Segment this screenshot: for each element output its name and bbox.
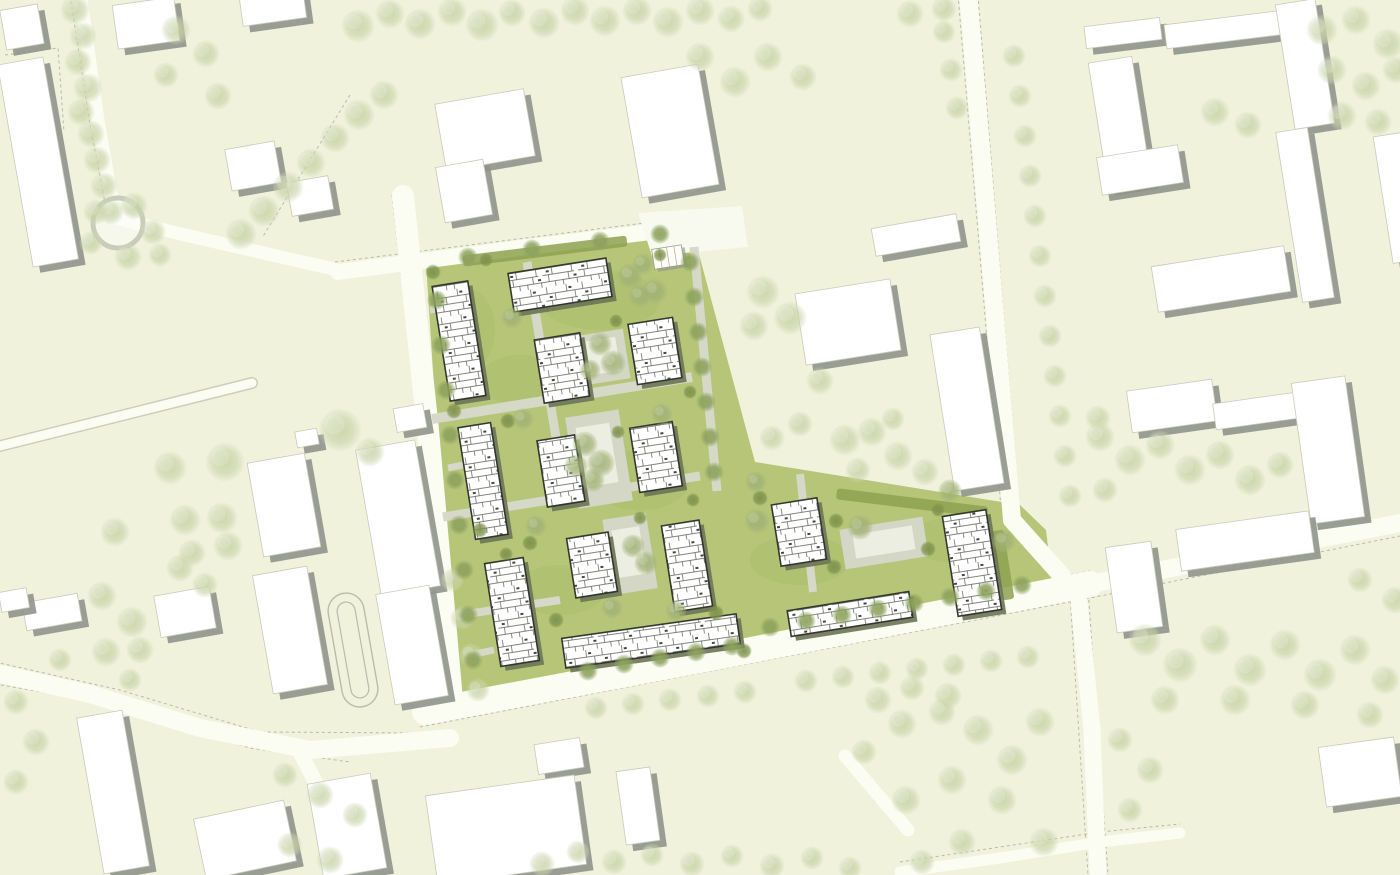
tree-highlight bbox=[444, 572, 455, 583]
street-tree bbox=[976, 581, 996, 601]
shrub bbox=[522, 535, 538, 551]
tree-highlight bbox=[253, 200, 267, 214]
tree-highlight bbox=[1346, 10, 1360, 24]
tree-highlight bbox=[683, 855, 695, 867]
tree-highlight bbox=[1052, 408, 1063, 419]
tree-highlight bbox=[325, 128, 339, 142]
tree-highlight bbox=[949, 100, 960, 111]
context-building-footprint bbox=[295, 428, 319, 448]
street-tree bbox=[522, 239, 542, 259]
context-building-footprint bbox=[1318, 737, 1400, 807]
tree-highlight bbox=[96, 642, 110, 656]
tree-highlight bbox=[1111, 731, 1123, 743]
tree-highlight bbox=[281, 836, 293, 848]
tree-highlight bbox=[348, 104, 362, 118]
tree-highlight bbox=[1057, 448, 1068, 459]
tree-highlight bbox=[835, 669, 846, 680]
tree-highlight bbox=[804, 850, 815, 861]
tree-highlight bbox=[92, 586, 106, 600]
tree-highlight bbox=[791, 415, 803, 427]
courtyard-tree-highlight bbox=[577, 436, 587, 446]
tree-highlight bbox=[1205, 102, 1219, 116]
shrub bbox=[653, 248, 667, 262]
tree-highlight bbox=[1356, 76, 1370, 90]
tree-highlight bbox=[942, 770, 956, 784]
tree-highlight bbox=[1368, 112, 1381, 125]
tree-highlight bbox=[1360, 705, 1373, 718]
street-tree bbox=[1012, 575, 1032, 595]
courtyard-tree-highlight bbox=[638, 555, 648, 565]
tree-highlight bbox=[1034, 832, 1048, 846]
context-building-footprint bbox=[436, 159, 493, 222]
courtyard-tree-highlight bbox=[622, 268, 632, 278]
tree-highlight bbox=[721, 9, 734, 22]
tree-highlight bbox=[470, 13, 485, 28]
tree-highlight bbox=[1119, 449, 1133, 463]
tree-highlight bbox=[1032, 248, 1043, 259]
tree-highlight bbox=[644, 847, 655, 858]
tree-highlight bbox=[121, 611, 135, 625]
context-building-footprint bbox=[0, 588, 30, 613]
tree-highlight bbox=[1001, 749, 1015, 763]
tree-highlight bbox=[983, 653, 994, 664]
tree-highlight bbox=[932, 702, 945, 715]
tree-highlight bbox=[594, 10, 608, 24]
tree-highlight bbox=[1311, 19, 1325, 33]
tree-highlight bbox=[158, 456, 173, 471]
shrub bbox=[548, 612, 564, 628]
tree-highlight bbox=[1204, 629, 1218, 643]
tree-highlight bbox=[1385, 590, 1398, 603]
tree-highlight bbox=[690, 47, 704, 61]
street-tree bbox=[431, 335, 451, 355]
proposed-building-floorplan bbox=[630, 422, 683, 493]
tree-highlight bbox=[952, 832, 965, 845]
shrub bbox=[446, 403, 462, 419]
street-tree bbox=[463, 650, 483, 670]
proposed-building-floorplan bbox=[628, 317, 682, 384]
shrub bbox=[611, 425, 625, 439]
tree-highlight bbox=[724, 848, 735, 859]
tree-highlight bbox=[346, 14, 361, 29]
tree-highlight bbox=[605, 853, 617, 865]
tree-highlight bbox=[118, 247, 131, 260]
tree-highlight bbox=[310, 785, 323, 798]
tree-highlight bbox=[1210, 445, 1224, 459]
courtyard-tree-highlight bbox=[852, 519, 862, 529]
tree-highlight bbox=[211, 448, 229, 466]
tree-highlight bbox=[360, 442, 374, 456]
tree-highlight bbox=[1375, 670, 1389, 684]
street-tree bbox=[614, 654, 634, 674]
tree-highlight bbox=[1239, 469, 1253, 483]
street-tree bbox=[832, 605, 852, 625]
shrub bbox=[499, 547, 513, 561]
tree-highlight bbox=[325, 415, 345, 435]
street-tree bbox=[440, 425, 460, 445]
tree-highlight bbox=[758, 47, 772, 61]
courtyard-tree-highlight bbox=[585, 472, 595, 482]
street-tree bbox=[436, 380, 456, 400]
tree-highlight bbox=[1377, 33, 1391, 47]
tree-highlight bbox=[144, 223, 156, 235]
courtyard-tree-highlight bbox=[942, 483, 952, 493]
tree-highlight bbox=[936, 24, 947, 35]
tree-highlight bbox=[946, 657, 957, 668]
tree-highlight bbox=[1270, 455, 1283, 468]
tree-highlight bbox=[588, 700, 599, 711]
tree-highlight bbox=[277, 176, 291, 190]
tree-highlight bbox=[627, 1, 641, 15]
courtyard-tree-highlight bbox=[516, 412, 525, 421]
tree-highlight bbox=[1017, 128, 1028, 139]
tree-highlight bbox=[442, 2, 456, 16]
tree-highlight bbox=[992, 790, 1006, 804]
tree-highlight bbox=[533, 855, 545, 867]
tree-highlight bbox=[913, 853, 925, 865]
street-tree bbox=[449, 515, 469, 535]
tree-highlight bbox=[1150, 435, 1164, 449]
tree-highlight bbox=[81, 124, 94, 137]
tree-highlight bbox=[130, 640, 143, 653]
tree-highlight bbox=[94, 176, 107, 189]
tree-highlight bbox=[174, 509, 188, 523]
tree-highlight bbox=[105, 522, 119, 536]
tree-highlight bbox=[885, 411, 896, 422]
tree-highlight bbox=[935, 0, 947, 12]
shrub bbox=[920, 541, 936, 557]
tree-highlight bbox=[763, 429, 775, 441]
street-tree bbox=[454, 560, 474, 580]
street-tree bbox=[680, 252, 700, 272]
tree-highlight bbox=[700, 688, 711, 699]
tree-highlight bbox=[810, 371, 823, 384]
tree-highlight bbox=[1238, 115, 1251, 128]
tree-highlight bbox=[1295, 695, 1309, 709]
tree-highlight bbox=[276, 766, 288, 778]
street-tree bbox=[650, 648, 670, 668]
tree-highlight bbox=[182, 543, 195, 556]
tree-highlight bbox=[211, 507, 225, 521]
shrub bbox=[686, 493, 700, 507]
tree-highlight bbox=[1121, 801, 1133, 813]
tree-highlight bbox=[1089, 409, 1101, 421]
tree-highlight bbox=[380, 4, 394, 18]
proposed-building bbox=[771, 497, 831, 571]
tree-highlight bbox=[1344, 639, 1358, 653]
shrub bbox=[683, 385, 697, 399]
tree-highlight bbox=[1274, 634, 1288, 648]
tree-highlight bbox=[892, 714, 906, 728]
shrub bbox=[708, 605, 724, 621]
tree-highlight bbox=[1020, 649, 1031, 660]
street-tree bbox=[940, 587, 960, 607]
street-tree bbox=[868, 599, 888, 619]
tree-highlight bbox=[909, 661, 920, 672]
context-building bbox=[0, 3, 51, 57]
street-tree bbox=[427, 290, 447, 310]
tree-highlight bbox=[565, 1, 579, 15]
tree-highlight bbox=[346, 806, 358, 818]
tree-highlight bbox=[71, 102, 84, 115]
tree-highlight bbox=[320, 850, 333, 863]
tree-highlight bbox=[166, 20, 180, 34]
courtyard-tree-highlight bbox=[605, 355, 615, 365]
tree-highlight bbox=[1037, 288, 1048, 299]
street-tree bbox=[458, 247, 478, 267]
courtyard-tree-highlight bbox=[605, 601, 614, 610]
tree-highlight bbox=[1022, 168, 1033, 179]
shrub bbox=[826, 559, 842, 575]
plan-layers-root bbox=[0, 0, 1400, 875]
shrub bbox=[425, 264, 441, 280]
tree-highlight bbox=[122, 672, 133, 683]
tree-highlight bbox=[124, 196, 137, 209]
tree-highlight bbox=[744, 316, 758, 330]
street-tree bbox=[650, 224, 670, 244]
proposed-building bbox=[628, 317, 687, 390]
tree-highlight bbox=[65, 0, 79, 13]
tree-highlight bbox=[1042, 328, 1053, 339]
street-tree bbox=[704, 462, 724, 482]
courtyard-tree-highlight bbox=[669, 604, 678, 613]
tree-highlight bbox=[374, 85, 388, 99]
courtyard-tree-highlight bbox=[749, 513, 759, 523]
tree-highlight bbox=[218, 536, 232, 550]
tree-highlight bbox=[170, 558, 183, 571]
tree-highlight bbox=[724, 71, 738, 85]
tree-highlight bbox=[849, 461, 861, 473]
tree-highlight bbox=[868, 690, 881, 703]
tree-highlight bbox=[7, 693, 19, 705]
tree-highlight bbox=[470, 682, 481, 693]
courtyard-tree-highlight bbox=[592, 454, 603, 465]
tree-highlight bbox=[1140, 760, 1153, 773]
tree-highlight bbox=[737, 684, 748, 695]
tree-highlight bbox=[1167, 652, 1183, 668]
tree-highlight bbox=[1096, 481, 1108, 493]
courtyard-tree-highlight bbox=[625, 538, 635, 548]
street-tree bbox=[796, 611, 816, 631]
tree-highlight bbox=[1155, 690, 1169, 704]
street-tree bbox=[686, 642, 706, 662]
shrub bbox=[828, 513, 844, 529]
tree-highlight bbox=[662, 692, 673, 703]
courtyard-tree-highlight bbox=[505, 311, 514, 320]
street-tree bbox=[578, 661, 598, 681]
tree-highlight bbox=[1332, 106, 1346, 120]
tree-highlight bbox=[196, 44, 209, 57]
street-tree bbox=[684, 287, 704, 307]
tree-highlight bbox=[798, 673, 809, 684]
tree-highlight bbox=[690, 1, 704, 15]
courtyard-tree-highlight bbox=[592, 336, 602, 346]
tree-highlight bbox=[903, 679, 915, 691]
proposed-building-floorplan bbox=[567, 532, 618, 598]
courtyard-tree-highlight bbox=[996, 533, 1006, 543]
tree-highlight bbox=[872, 665, 883, 676]
context-building bbox=[436, 158, 500, 229]
shrub bbox=[472, 522, 488, 538]
tree-highlight bbox=[900, 4, 913, 17]
tree-highlight bbox=[301, 153, 315, 167]
tree-highlight bbox=[1006, 48, 1017, 59]
tree-highlight bbox=[208, 86, 221, 99]
tree-highlight bbox=[625, 696, 636, 707]
context-building-footprint bbox=[393, 404, 427, 433]
courtyard-tree-highlight bbox=[632, 288, 642, 298]
tree-highlight bbox=[1133, 628, 1148, 643]
tree-highlight bbox=[83, 235, 94, 246]
shrub bbox=[479, 253, 493, 267]
tree-highlight bbox=[409, 13, 423, 27]
shrub bbox=[633, 511, 647, 525]
tree-highlight bbox=[943, 62, 954, 73]
tree-highlight bbox=[152, 247, 163, 258]
tree-highlight bbox=[888, 446, 902, 460]
tree-highlight bbox=[793, 67, 806, 80]
tree-highlight bbox=[751, 0, 763, 12]
courtyard-tree-highlight bbox=[529, 519, 538, 528]
tree-highlight bbox=[842, 860, 853, 871]
tree-highlight bbox=[778, 306, 793, 321]
tree-highlight bbox=[1351, 571, 1363, 583]
street-tree bbox=[692, 357, 712, 377]
tree-highlight bbox=[570, 844, 581, 855]
site-plan-stage bbox=[0, 0, 1400, 875]
tree-highlight bbox=[157, 66, 169, 78]
tree-highlight bbox=[938, 686, 951, 699]
context-building-footprint bbox=[0, 4, 44, 50]
tree-highlight bbox=[896, 790, 910, 804]
tree-highlight bbox=[1062, 488, 1073, 499]
tree-highlight bbox=[7, 773, 19, 785]
tree-highlight bbox=[1224, 689, 1238, 703]
tree-highlight bbox=[763, 857, 775, 869]
tree-highlight bbox=[502, 3, 515, 16]
courtyard-tree-highlight bbox=[655, 407, 664, 416]
proposed-building-floorplan bbox=[771, 498, 826, 566]
tree-highlight bbox=[1238, 658, 1253, 673]
tree-highlight bbox=[1179, 459, 1193, 473]
courtyard-tree-highlight bbox=[568, 458, 578, 468]
street-tree bbox=[445, 470, 465, 490]
tree-highlight bbox=[855, 743, 867, 755]
street-tree bbox=[688, 322, 708, 342]
context-building bbox=[795, 278, 908, 372]
context-building bbox=[1318, 736, 1400, 814]
tree-highlight bbox=[533, 12, 547, 26]
tree-highlight bbox=[87, 203, 99, 215]
tree-highlight bbox=[230, 223, 244, 237]
tree-highlight bbox=[1308, 663, 1323, 678]
tree-highlight bbox=[78, 78, 92, 92]
shrub bbox=[931, 503, 945, 517]
tree-highlight bbox=[1027, 208, 1038, 219]
tree-highlight bbox=[26, 732, 39, 745]
shrub bbox=[609, 314, 623, 328]
tree-highlight bbox=[657, 11, 671, 25]
context-building-footprint bbox=[795, 279, 901, 365]
tree-highlight bbox=[915, 462, 928, 475]
street-tree bbox=[590, 231, 610, 251]
street-tree bbox=[722, 636, 742, 656]
tree-highlight bbox=[1012, 88, 1023, 99]
tree-highlight bbox=[68, 52, 81, 65]
street-tree bbox=[696, 392, 716, 412]
courtyard-tree-highlight bbox=[583, 363, 592, 372]
tree-highlight bbox=[967, 719, 981, 733]
courtyard-tree-highlight bbox=[636, 257, 645, 266]
street-tree bbox=[904, 593, 924, 613]
street-tree bbox=[760, 617, 780, 637]
tree-highlight bbox=[751, 280, 766, 295]
street-tree bbox=[700, 427, 720, 447]
tree-highlight bbox=[1030, 712, 1044, 726]
street-tree bbox=[458, 605, 478, 625]
tree-highlight bbox=[52, 652, 63, 663]
courtyard-tree-highlight bbox=[749, 475, 758, 484]
tree-highlight bbox=[196, 576, 208, 588]
tree-highlight bbox=[1386, 60, 1399, 73]
tree-highlight bbox=[87, 150, 100, 163]
tree-highlight bbox=[73, 26, 86, 39]
tree-highlight bbox=[862, 422, 876, 436]
tree-highlight bbox=[1047, 368, 1058, 379]
masterplan-drawing bbox=[0, 0, 1400, 875]
tree-highlight bbox=[834, 429, 848, 443]
tree-highlight bbox=[1090, 427, 1104, 441]
tree-highlight bbox=[1322, 60, 1336, 74]
